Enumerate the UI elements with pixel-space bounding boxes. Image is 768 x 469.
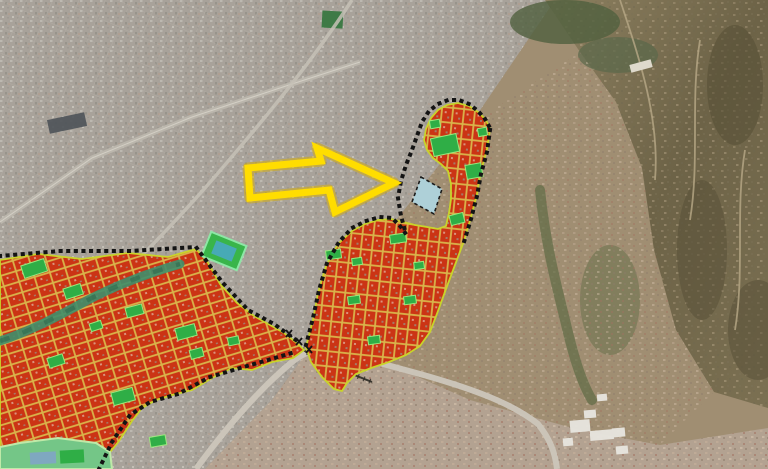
park-field [60,449,85,463]
corner-park [0,438,112,469]
ridge-shadow [707,25,763,145]
forest-patch [510,0,620,44]
park-pool [30,451,57,464]
map-canvas [0,0,768,469]
aerial-map [0,0,768,469]
ridge-shadow [677,180,727,320]
